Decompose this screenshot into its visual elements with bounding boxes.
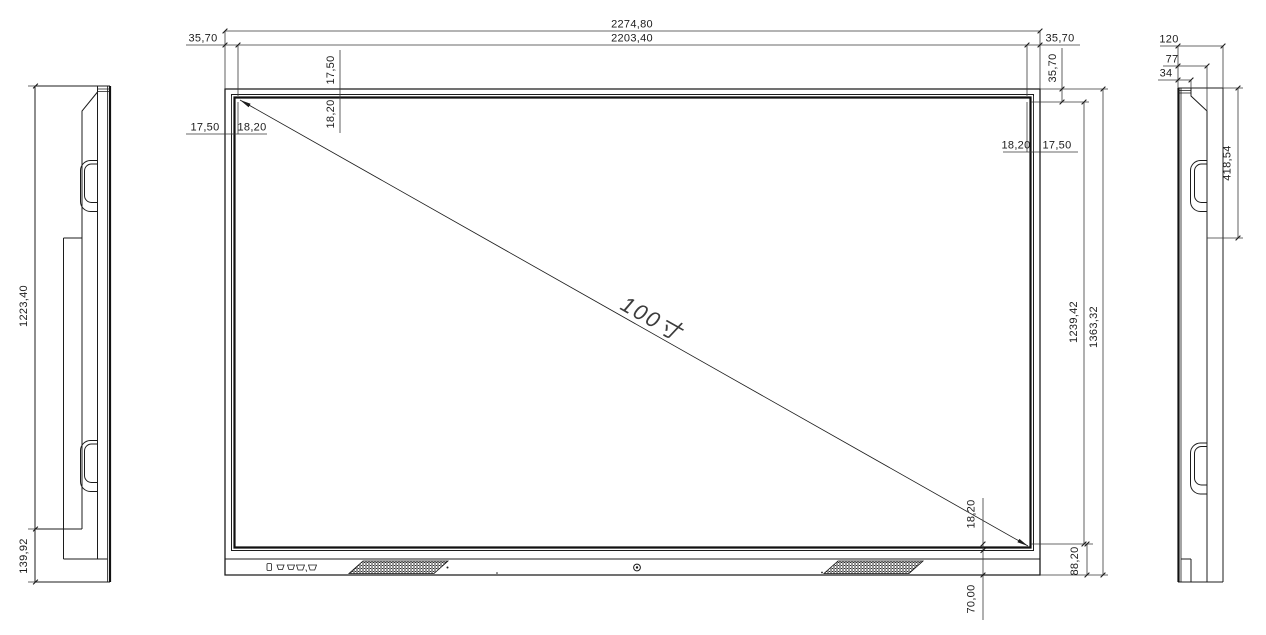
dimension-label-top-inner-inset: 18,20: [325, 99, 337, 128]
right-view-front-frame-chamfer: [1191, 88, 1207, 111]
dimension-label-bottom-glass-offset: 70,00: [966, 584, 978, 613]
av-port-icon: [297, 565, 307, 572]
dimension-label-left-body-height: 1223,40: [18, 285, 30, 327]
dimension-label-handle-offset: 418,54: [1222, 145, 1234, 180]
power-button: [634, 564, 641, 571]
usb-port-icon: [267, 564, 272, 571]
front-view-dim-ticks: [223, 29, 1106, 578]
dimension-label-bezel-left: 35,70: [188, 33, 217, 45]
front-port-icons: [267, 564, 317, 572]
av-port-icon: [288, 565, 295, 570]
dimension-label-bottom-bezel: 88,20: [1069, 546, 1081, 575]
dimension-label-overall-width: 2274,80: [611, 19, 653, 31]
mic-hole-dot: [447, 567, 449, 569]
dimension-label-depth-overall: 120: [1159, 34, 1178, 46]
front-view: 100寸 2274,80 2203,40 35,70 35,70 17,50 1…: [186, 19, 1108, 621]
handle-lower-left-view: [81, 441, 98, 492]
av-port-icon: [309, 565, 317, 570]
dimension-label-left-outer-inset: 17,50: [190, 122, 219, 134]
right-side-view: 120 77 34 418,54: [1158, 34, 1243, 583]
diagonal-dimension-line: [240, 100, 1028, 546]
dimension-label-depth-mid: 77: [1166, 54, 1179, 66]
left-side-view: 1223,40 139,92: [18, 84, 110, 585]
power-button-dot: [636, 566, 638, 568]
diagonal-arrowhead-bottom: [1017, 539, 1028, 546]
dimension-label-right-outer-inset: 17,50: [1042, 140, 1071, 152]
dimension-label-depth-front: 34: [1160, 68, 1173, 80]
left-view-back-seam: [64, 238, 108, 559]
dimension-label-bezel-top: 35,70: [1047, 53, 1059, 82]
speaker-grille-right: [824, 561, 923, 574]
handle-lower-right-view: [1191, 443, 1208, 494]
handle-upper-left-view: [81, 161, 98, 212]
handle-upper-right-view: [1191, 161, 1208, 212]
diagonal-size-label: 100寸: [617, 291, 688, 346]
left-view-glass-band: [98, 89, 111, 92]
right-view-outline: [1178, 88, 1223, 582]
right-view-dim-ticks: [1176, 44, 1241, 241]
dimension-label-active-height: 1239,42: [1068, 301, 1080, 343]
technical-drawing-page: 1223,40 139,92 100寸: [0, 0, 1266, 635]
dimension-label-top-outer-inset: 17,50: [325, 55, 337, 84]
front-view-outer-frame: [225, 89, 1040, 575]
diagonal-arrowhead-top: [240, 100, 251, 107]
left-view-outline: [35, 86, 110, 582]
av-port-icon: [277, 565, 284, 570]
dimension-label-left-base-height: 139,92: [18, 538, 30, 573]
right-view-bottom-step: [1181, 559, 1191, 582]
mic-hole-dot: [496, 572, 498, 574]
dimension-label-bezel-right: 35,70: [1045, 33, 1074, 45]
mic-hole-dot: [821, 572, 823, 574]
dimension-label-bottom-inner-inset: 18,20: [966, 499, 978, 528]
dimension-label-left-inner-inset: 18,20: [237, 122, 266, 134]
technical-drawing-canvas: 1223,40 139,92 100寸: [0, 0, 1266, 635]
dimension-label-active-width: 2203,40: [611, 33, 653, 45]
speaker-grille-left: [349, 561, 448, 574]
dimension-label-overall-height: 1363,32: [1088, 306, 1100, 348]
dimension-label-right-inner-inset: 18,20: [1001, 140, 1030, 152]
left-view-extension-lines: [28, 86, 35, 582]
right-view-glass-band: [1178, 91, 1191, 94]
